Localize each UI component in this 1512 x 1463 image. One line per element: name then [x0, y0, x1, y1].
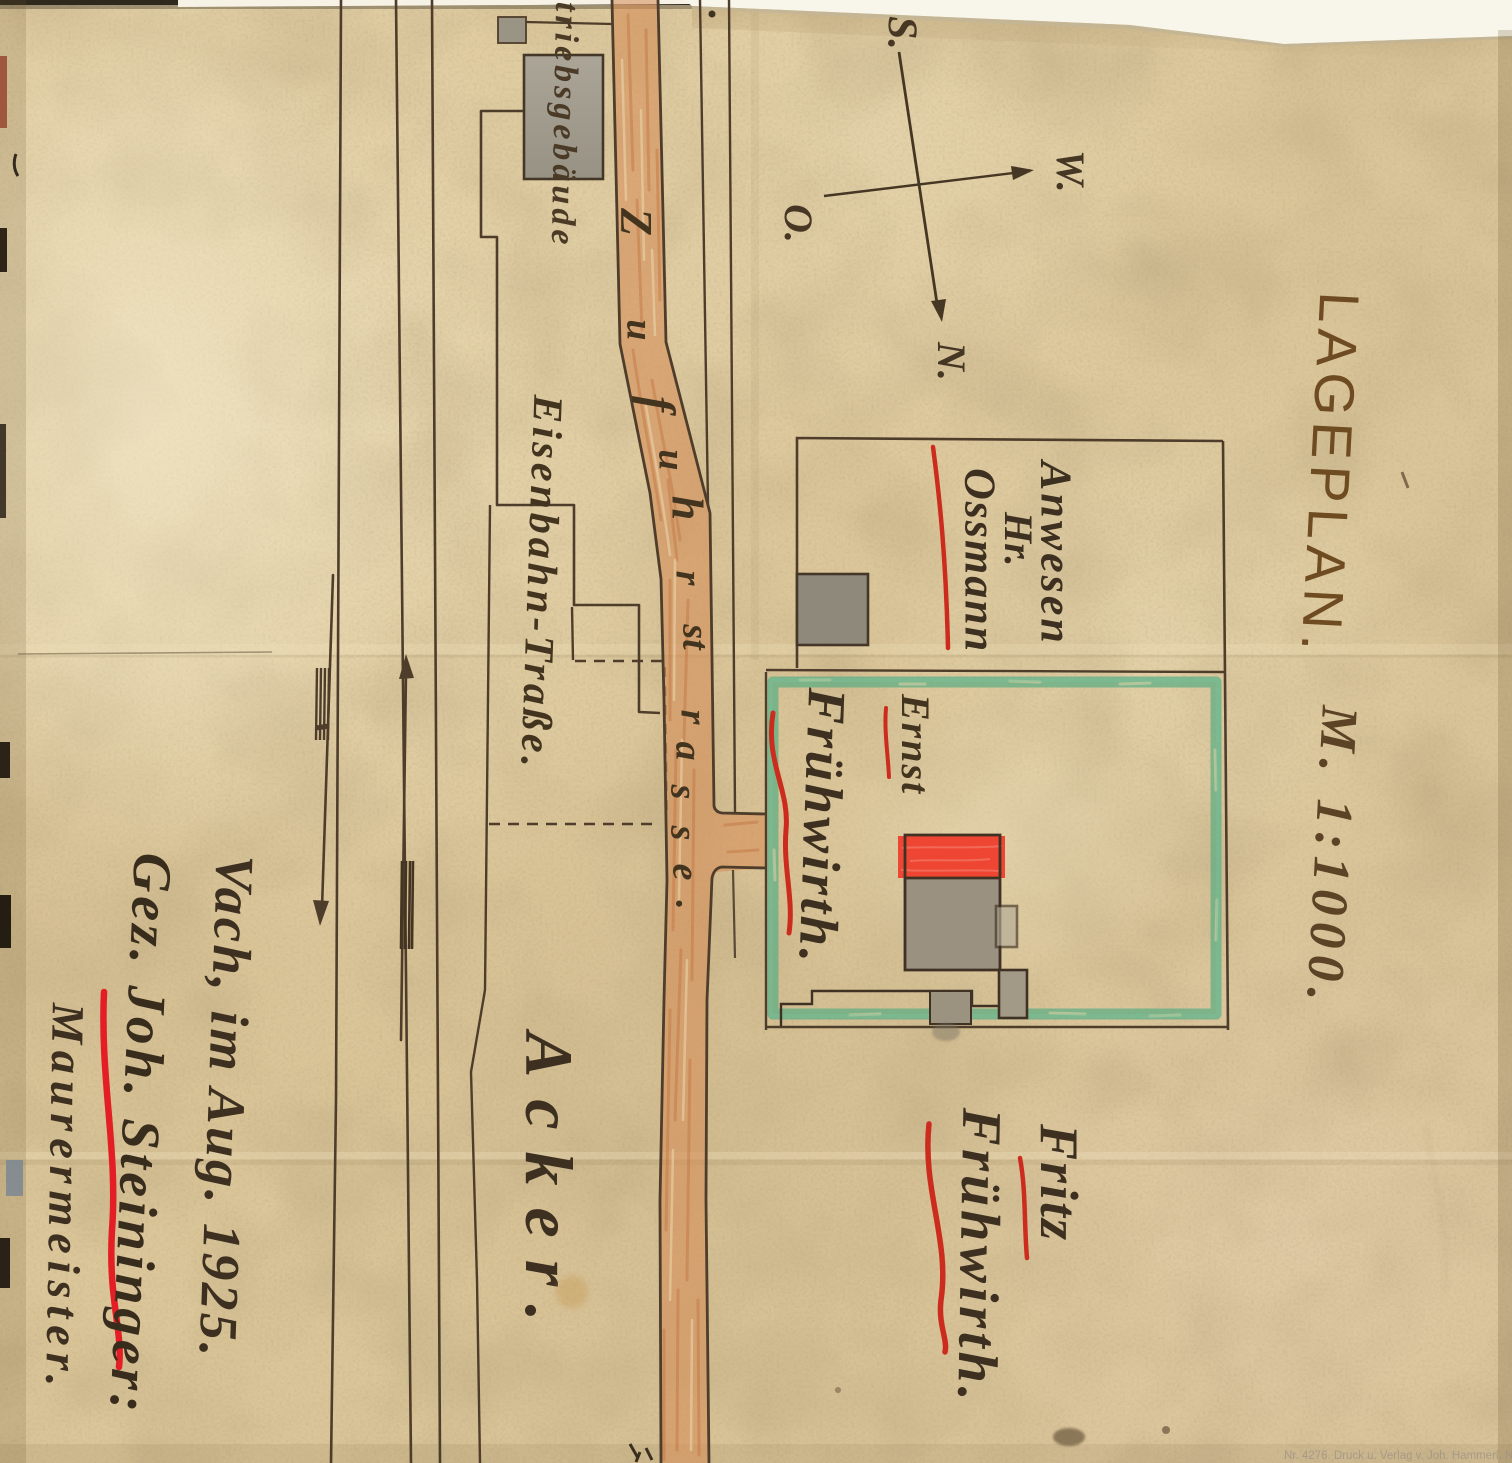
svg-text:Ossmann: Ossmann [956, 468, 1005, 653]
svg-text:.: . [668, 900, 710, 910]
svg-text:h: h [663, 496, 712, 520]
svg-text:Frühwirth.: Frühwirth. [945, 1106, 1012, 1405]
svg-text:s: s [663, 784, 705, 800]
svg-text:W.: W. [1048, 150, 1093, 193]
svg-text:O.: O. [776, 204, 821, 243]
svg-text:Maurermeister.: Maurermeister. [36, 1002, 94, 1394]
svg-text:r: r [673, 710, 715, 726]
svg-text:N.: N. [929, 341, 974, 381]
svg-text:Fritz: Fritz [1029, 1123, 1089, 1242]
svg-text:Z: Z [611, 207, 662, 236]
svg-text:r: r [668, 571, 710, 587]
svg-text:S.: S. [878, 16, 924, 50]
svg-text:e: e [665, 864, 707, 881]
svg-text:u: u [651, 449, 693, 470]
svg-text:triebsgebäude: triebsgebäude [544, 2, 585, 249]
svg-text:s: s [663, 825, 705, 841]
svg-text:Ernst: Ernst [893, 693, 938, 795]
svg-text:a: a [668, 742, 710, 761]
svg-text:st: st [675, 623, 717, 651]
svg-text:u: u [619, 319, 661, 340]
svg-text:Nr. 4276. Druck u. Verlag v. J: Nr. 4276. Druck u. Verlag v. Joh. Hammer… [1284, 1450, 1512, 1462]
svg-text:Frühwirth.: Frühwirth. [787, 686, 857, 967]
